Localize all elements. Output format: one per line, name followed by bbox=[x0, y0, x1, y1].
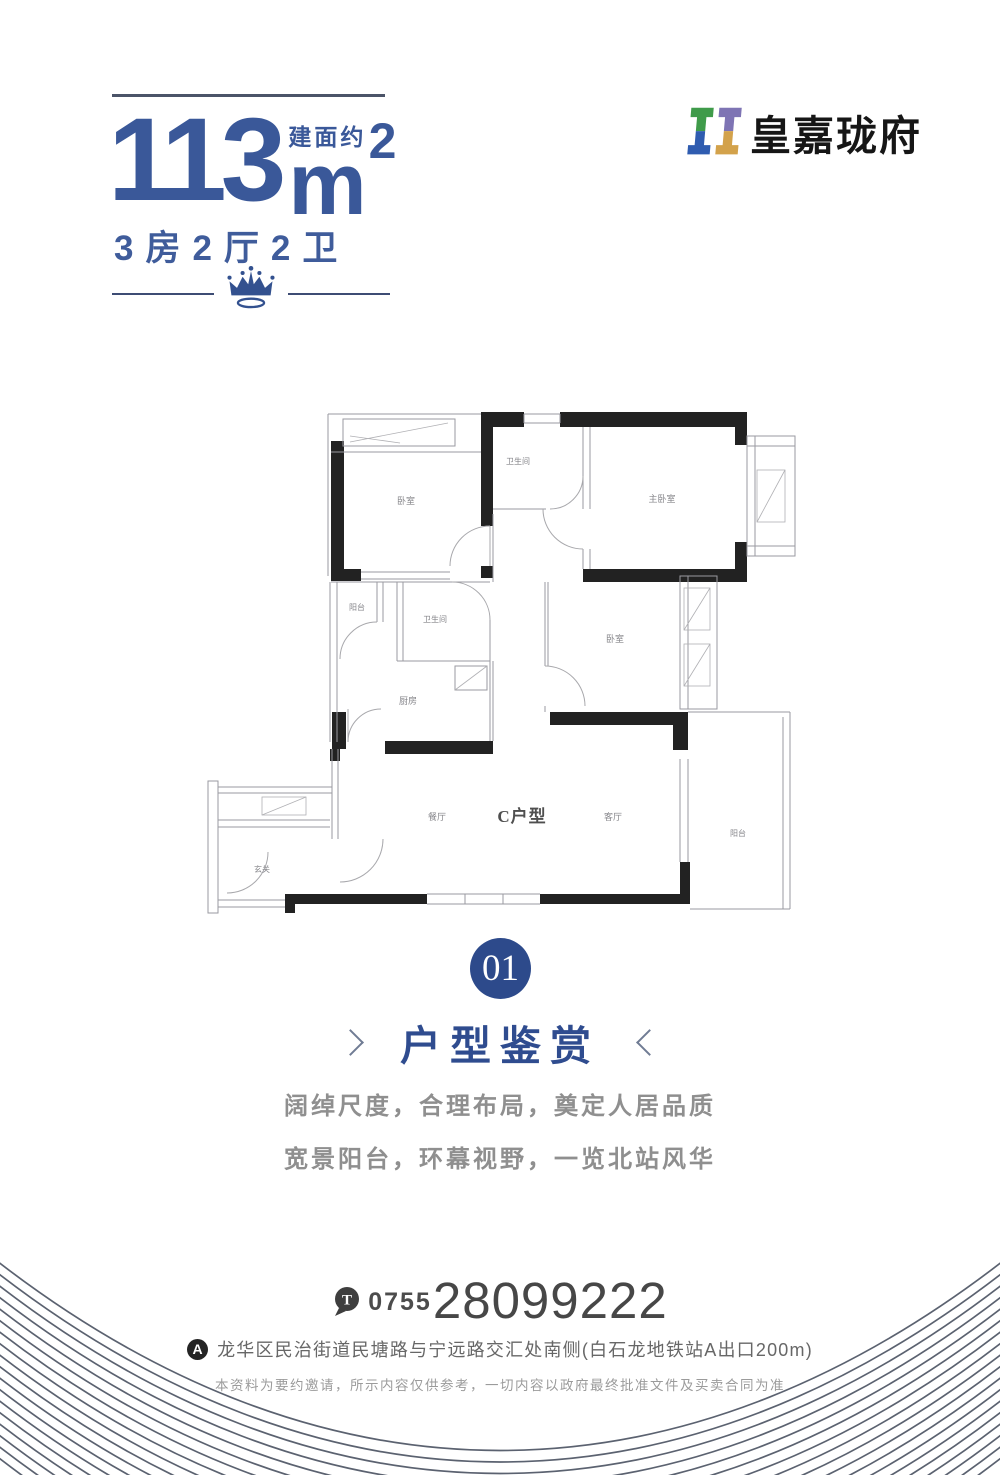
section-heading: 户型鉴赏 bbox=[0, 1012, 1000, 1072]
brand-name: 皇嘉珑府 bbox=[750, 102, 922, 162]
walls bbox=[285, 412, 747, 913]
chevron-left-icon bbox=[636, 1029, 663, 1056]
room-label-bath2: 卫生间 bbox=[423, 614, 447, 624]
room-label-dining: 餐厅 bbox=[428, 811, 446, 822]
unit-type-label: C户型 bbox=[497, 806, 546, 826]
flyer-page: 113 建面约 m 2 3房2厅2卫 bbox=[0, 0, 1000, 1475]
room-label-bath1: 卫生间 bbox=[506, 456, 530, 466]
crown-line-right bbox=[288, 293, 390, 295]
wave-decoration bbox=[0, 1246, 1000, 1475]
room-label-bedroom2: 卧室 bbox=[606, 633, 624, 644]
section-title: 户型鉴赏 bbox=[400, 1012, 600, 1072]
area-value: 113 bbox=[108, 106, 280, 215]
tagline-2: 宽景阳台，环幕视野，一览北站风华 bbox=[0, 1139, 1000, 1174]
floor-plan-svg: 卧室 卫生间 主卧室 阳台 卫生间 厨房 卧室 玄关 餐厅 C户型 客厅 阳台 bbox=[200, 392, 800, 940]
room-label-kitchen: 厨房 bbox=[399, 695, 417, 706]
tagline-1: 阔绰尺度，合理布局，奠定人居品质 bbox=[0, 1086, 1000, 1121]
crown-icon bbox=[223, 264, 279, 310]
thin-walls bbox=[208, 414, 795, 913]
room-label-foyer: 玄关 bbox=[254, 864, 270, 874]
room-label-master: 主卧室 bbox=[648, 493, 675, 504]
chevron-right-icon bbox=[337, 1029, 364, 1056]
brand-logo-icon bbox=[686, 104, 742, 160]
crown-divider bbox=[112, 264, 390, 310]
floor-plan: 卧室 卫生间 主卧室 阳台 卫生间 厨房 卧室 玄关 餐厅 C户型 客厅 阳台 bbox=[200, 392, 800, 940]
room-label-bedroom1: 卧室 bbox=[397, 495, 415, 506]
room-label-balcony-main: 阳台 bbox=[730, 828, 746, 838]
area-unit: m bbox=[288, 150, 366, 219]
room-label-balcony-side: 阳台 bbox=[349, 602, 365, 612]
area-exponent: 2 bbox=[369, 112, 397, 170]
room-label-living: 客厅 bbox=[604, 811, 622, 822]
crown-line-left bbox=[112, 293, 214, 295]
section-number-badge: 01 bbox=[470, 938, 531, 999]
doors bbox=[227, 476, 585, 893]
brand-logo: 皇嘉珑府 bbox=[686, 102, 922, 162]
area-block: 113 建面约 m 2 bbox=[108, 106, 396, 219]
